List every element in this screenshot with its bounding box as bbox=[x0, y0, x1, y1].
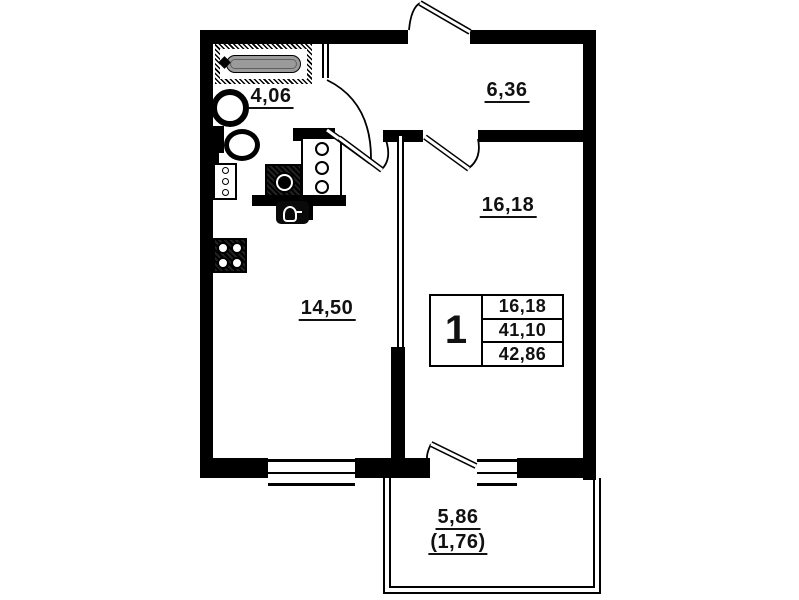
wall-bottom-c bbox=[517, 458, 596, 478]
toilet-icon bbox=[224, 129, 260, 161]
living-area-label: 14,50 bbox=[299, 298, 356, 321]
total-area-cell: 42,86 bbox=[483, 341, 562, 365]
kitchen-door-swing bbox=[339, 138, 388, 170]
balcony-area-label: 5,86 bbox=[436, 507, 481, 530]
floor-plan: 4,06 6,36 16,18 14,50 5,86 (1,76) 1 16,1… bbox=[0, 0, 799, 600]
bedroom-door-swing bbox=[425, 137, 479, 169]
wall-top-left bbox=[200, 30, 408, 44]
balcony-door-swing bbox=[427, 444, 476, 466]
fridge-icon bbox=[301, 137, 342, 199]
apartment-area-cell: 41,10 bbox=[483, 318, 562, 342]
partition-living-bedroom bbox=[397, 136, 404, 347]
wall-living-bedroom-thick bbox=[391, 347, 405, 458]
balcony-inner-outline bbox=[389, 478, 595, 588]
toilet-cistern-icon bbox=[213, 126, 224, 153]
wall-hall-bedroom bbox=[478, 130, 583, 142]
window-glass-line bbox=[268, 472, 355, 474]
stove-icon bbox=[213, 238, 247, 273]
wall-bottom-a bbox=[200, 458, 268, 478]
balcony-coefficient-label: (1,76) bbox=[428, 532, 487, 555]
area-stamp-table: 1 16,18 41,10 42,86 bbox=[429, 294, 564, 367]
hallway-area-label: 6,36 bbox=[485, 80, 530, 103]
window-glass-line bbox=[477, 472, 517, 474]
wall-right bbox=[583, 30, 596, 480]
rooms-count-cell: 1 bbox=[431, 296, 483, 365]
washbasin-icon bbox=[211, 89, 249, 127]
living-area-cell: 16,18 bbox=[483, 296, 562, 318]
partition-bathroom bbox=[322, 44, 329, 78]
bathroom-area-label: 4,06 bbox=[249, 86, 294, 109]
living-window bbox=[268, 459, 355, 486]
wall-left bbox=[200, 30, 213, 478]
wall-top-right bbox=[470, 30, 596, 44]
bedroom-area-label: 16,18 bbox=[480, 195, 537, 218]
kitchen-sink-icon bbox=[276, 201, 309, 224]
bathtub-icon bbox=[215, 44, 312, 84]
entrance-door-swing bbox=[409, 3, 470, 32]
wall-bottom-b bbox=[355, 458, 430, 478]
cabinet-icon bbox=[213, 163, 237, 200]
balcony-outline bbox=[383, 478, 601, 594]
